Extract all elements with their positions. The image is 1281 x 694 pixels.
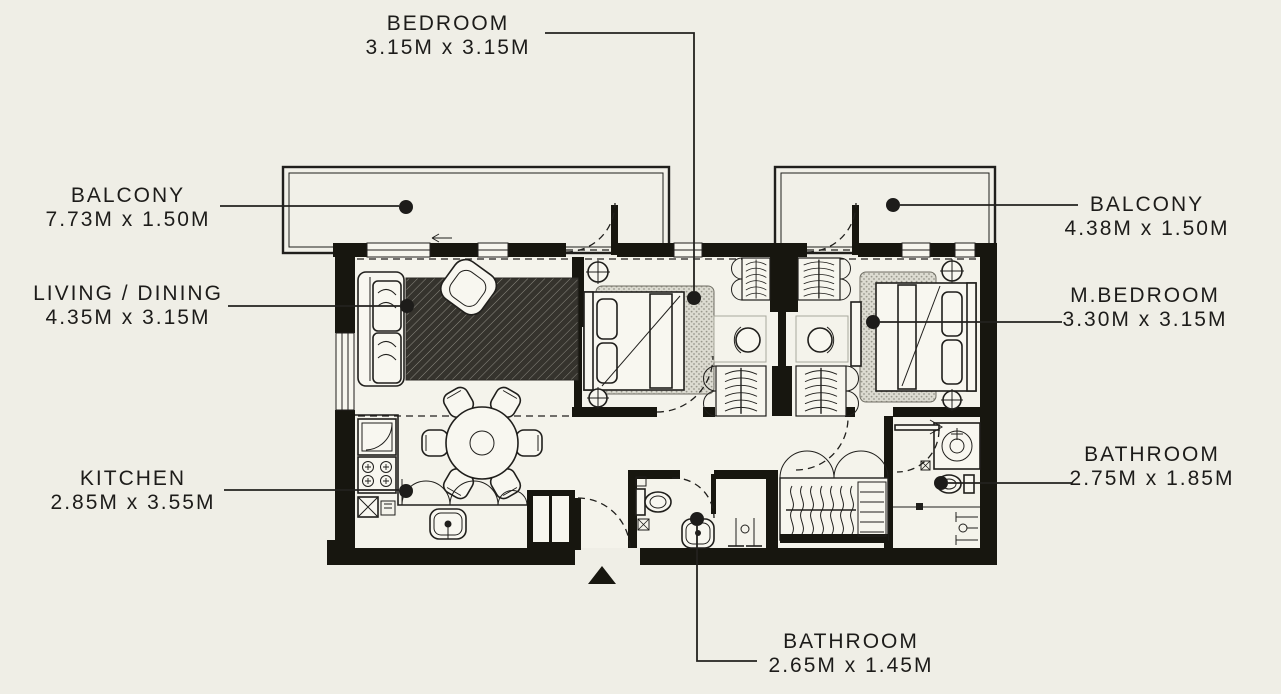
label-balcony-left: BALCONY 7.73M x 1.50M [0, 184, 259, 232]
floor-plan-drawing [0, 0, 1281, 694]
room-name: BEDROOM [317, 12, 579, 36]
room-name: M.BEDROOM [1014, 284, 1276, 308]
room-size: 7.73M x 1.50M [0, 208, 259, 232]
room-size: 2.85M x 3.55M [2, 491, 264, 515]
room-name: BALCONY [1016, 193, 1278, 217]
label-bedroom: BEDROOM 3.15M x 3.15M [317, 12, 579, 60]
room-name: LIVING / DINING [0, 282, 259, 306]
label-bathroom-right: BATHROOM 2.75M x 1.85M [1021, 443, 1281, 491]
room-name: BATHROOM [1021, 443, 1281, 467]
label-bathroom-bottom: BATHROOM 2.65M x 1.45M [720, 630, 982, 678]
room-name: KITCHEN [2, 467, 264, 491]
label-balcony-right: BALCONY 4.38M x 1.50M [1016, 193, 1278, 241]
laundry-sink [430, 509, 466, 539]
floor-plan-page: BEDROOM 3.15M x 3.15M BALCONY 7.73M x 1.… [0, 0, 1281, 694]
room-name: BATHROOM [720, 630, 982, 654]
entrance-arrow-icon [588, 566, 616, 584]
room-size: 3.15M x 3.15M [317, 36, 579, 60]
vanity-sink [934, 423, 980, 469]
room-size: 4.38M x 1.50M [1016, 217, 1278, 241]
bathtub-fixtures [956, 512, 978, 545]
label-living-dining: LIVING / DINING 4.35M x 3.15M [0, 282, 259, 330]
room-size: 2.75M x 1.85M [1021, 467, 1281, 491]
room-name: BALCONY [0, 184, 259, 208]
label-kitchen: KITCHEN 2.85M x 3.55M [2, 467, 264, 515]
fridge [358, 419, 396, 455]
bench [851, 302, 861, 366]
label-m-bedroom: M.BEDROOM 3.30M x 3.15M [1014, 284, 1276, 332]
room-size: 4.35M x 3.15M [0, 306, 259, 330]
room-size: 3.30M x 3.15M [1014, 308, 1276, 332]
sofa [358, 272, 404, 386]
room-size: 2.65M x 1.45M [720, 654, 982, 678]
entry-closet [527, 490, 575, 548]
stove [358, 457, 396, 493]
